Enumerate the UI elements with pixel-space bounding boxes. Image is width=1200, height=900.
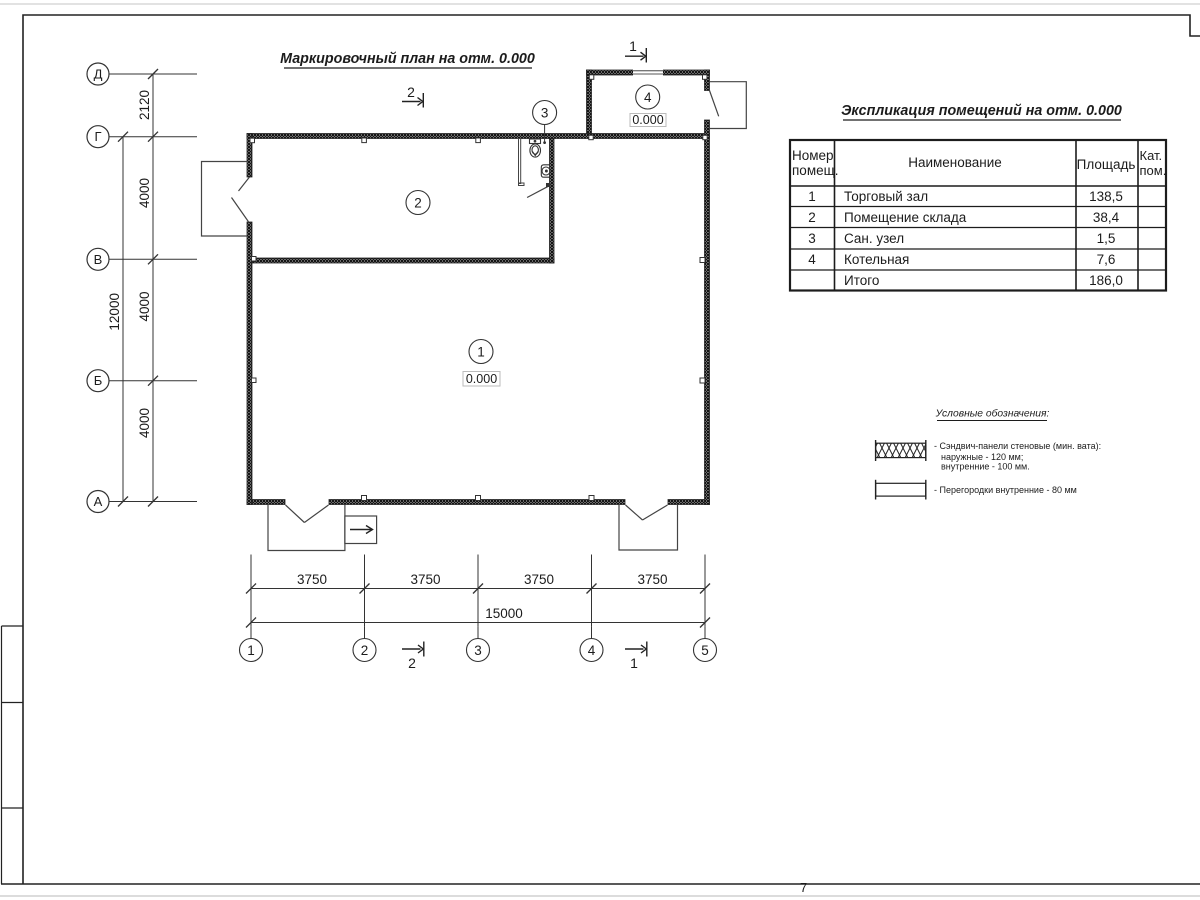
svg-text:помещ.: помещ. [792,163,838,178]
svg-text:А: А [94,494,103,509]
svg-text:4000: 4000 [137,291,152,321]
svg-text:2: 2 [408,655,416,671]
svg-text:Сан. узел: Сан. узел [844,231,904,246]
svg-text:Б: Б [94,373,103,388]
svg-text:38,4: 38,4 [1093,210,1120,225]
svg-text:7: 7 [800,880,807,895]
svg-text:Маркировочный план на отм. 0.0: Маркировочный план на отм. 0.000 [280,51,535,67]
svg-text:4: 4 [644,90,652,105]
svg-text:186,0: 186,0 [1089,273,1123,288]
svg-text:Помещение склада: Помещение склада [844,210,967,225]
svg-text:1: 1 [247,643,255,658]
svg-text:2120: 2120 [137,90,152,120]
svg-text:2: 2 [361,643,369,658]
svg-text:12000: 12000 [107,293,122,331]
svg-text:1,5: 1,5 [1097,231,1116,246]
svg-text:3: 3 [474,643,482,658]
svg-text:1: 1 [477,345,485,360]
svg-text:5: 5 [701,643,709,658]
svg-text:3: 3 [808,231,816,246]
svg-text:1: 1 [630,655,638,671]
svg-text:4: 4 [588,643,596,658]
svg-text:Наименование: Наименование [908,155,1002,170]
svg-text:2: 2 [808,210,816,225]
svg-text:0.000: 0.000 [632,113,663,127]
svg-text:Г: Г [94,129,101,144]
svg-text:1: 1 [629,38,637,54]
svg-text:3750: 3750 [297,572,327,587]
svg-text:Итого: Итого [844,273,879,288]
svg-text:4000: 4000 [137,408,152,438]
svg-text:2: 2 [407,84,415,100]
svg-text:Площадь: Площадь [1077,157,1136,172]
svg-text:2: 2 [414,196,422,211]
svg-text:15000: 15000 [485,606,523,621]
svg-text:Экспликация помещений на отм.: Экспликация помещений на отм. 0.000 [841,103,1122,119]
svg-text:Д: Д [94,67,103,82]
svg-text:- Сэндвич-панели стеновые (мин: - Сэндвич-панели стеновые (мин. вата): [934,441,1101,451]
svg-text:Котельная: Котельная [844,252,909,267]
svg-text:4000: 4000 [137,178,152,208]
svg-text:В: В [94,252,103,267]
svg-text:3750: 3750 [410,572,440,587]
svg-text:7,6: 7,6 [1097,252,1116,267]
svg-text:0.000: 0.000 [466,372,497,386]
svg-text:1: 1 [808,189,816,204]
svg-text:3: 3 [541,106,549,121]
svg-text:4: 4 [808,252,816,267]
svg-text:- Перегородки внутренние - 80: - Перегородки внутренние - 80 мм [934,485,1077,495]
svg-text:пом.: пом. [1140,163,1167,178]
svg-text:наружные - 120 мм;: наружные - 120 мм; [941,452,1023,462]
svg-text:138,5: 138,5 [1089,189,1123,204]
svg-text:Торговый зал: Торговый зал [844,189,928,204]
svg-text:Условные обозначения:: Условные обозначения: [935,408,1050,420]
svg-text:3750: 3750 [524,572,554,587]
svg-text:3750: 3750 [637,572,667,587]
svg-text:Номер: Номер [792,148,834,163]
svg-text:внутренние - 100 мм.: внутренние - 100 мм. [941,462,1030,472]
svg-text:Кат.: Кат. [1140,148,1163,163]
